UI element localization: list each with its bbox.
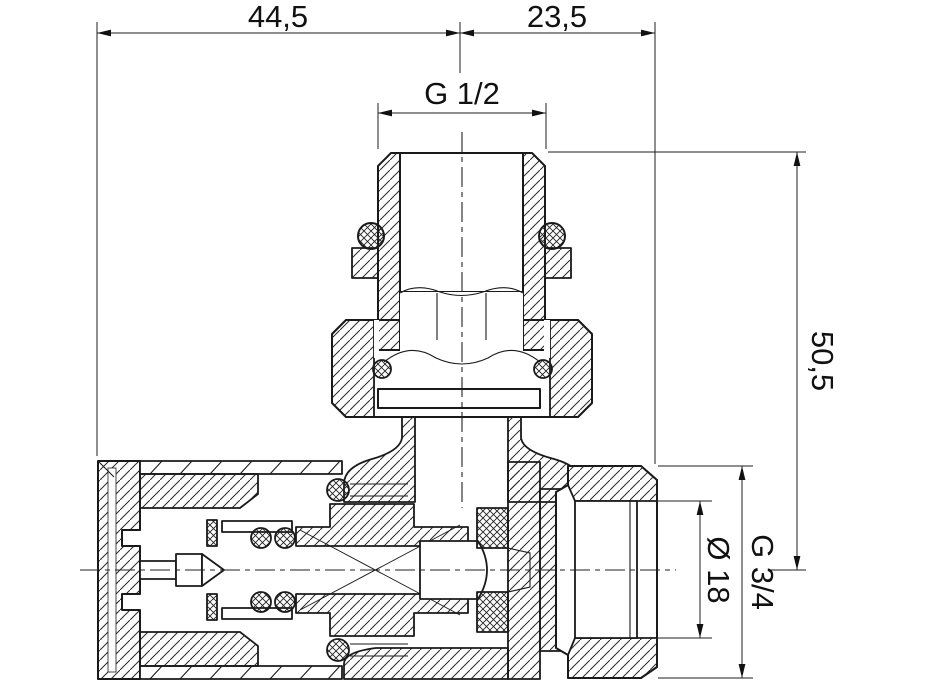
dimension-label-outlet-bore: Ø 18 bbox=[701, 536, 736, 603]
valve-section-canvas: 44,5 23,5 G 1/2 50,5 Ø 18 G 3/4 bbox=[0, 0, 928, 686]
seal-bar-lower bbox=[207, 594, 217, 620]
arrow-top-g34 bbox=[739, 466, 746, 480]
seat-seal-upper bbox=[477, 508, 508, 548]
arrow-left-44 bbox=[97, 30, 111, 37]
seal-bar-upper bbox=[207, 520, 217, 546]
dimension-label-outlet-thread: G 3/4 bbox=[745, 534, 780, 610]
arrow-bottom-d18 bbox=[697, 624, 704, 638]
oring-mid-right bbox=[534, 360, 552, 378]
spindle-oring-1 bbox=[251, 528, 271, 548]
dimension-label-height: 50,5 bbox=[805, 331, 840, 391]
seat-seal-lower bbox=[477, 592, 508, 632]
spindle-oring-4 bbox=[275, 592, 295, 612]
arrow-right-44 bbox=[446, 30, 460, 37]
shell-top-plate bbox=[140, 461, 342, 474]
cartridge-oring-top bbox=[327, 479, 349, 501]
cartridge-lower bbox=[296, 594, 468, 636]
arrow-top-505 bbox=[794, 152, 801, 166]
oring-bracket-right bbox=[545, 248, 571, 278]
oring-mid-left bbox=[373, 360, 391, 378]
oring-top-right bbox=[539, 223, 565, 249]
lower-bracket bbox=[140, 632, 258, 666]
bottom-flare bbox=[344, 648, 508, 679]
oring-bracket-left bbox=[352, 248, 378, 278]
cartridge-upper bbox=[296, 504, 468, 546]
arrow-bottom-505 bbox=[794, 556, 801, 570]
dimension-label-top-width-left: 44,5 bbox=[248, 0, 308, 34]
arrow-left-g12 bbox=[378, 110, 392, 117]
upper-bracket bbox=[140, 474, 258, 508]
dimension-label-top-width-right: 23,5 bbox=[527, 0, 587, 34]
shell-bottom-plate bbox=[140, 666, 342, 679]
arrow-left-23 bbox=[460, 30, 474, 37]
arrow-right-g12 bbox=[532, 110, 546, 117]
arrow-right-23 bbox=[641, 30, 655, 37]
dimension-label-top-thread: G 1/2 bbox=[424, 76, 500, 111]
arrow-top-d18 bbox=[697, 501, 704, 515]
valve-technical-drawing: 44,5 23,5 G 1/2 50,5 Ø 18 G 3/4 bbox=[0, 0, 928, 686]
outlet-union-nut bbox=[556, 466, 657, 678]
washer bbox=[378, 389, 540, 408]
spindle-oring-3 bbox=[251, 592, 271, 612]
arrow-bottom-g34 bbox=[739, 664, 746, 678]
oring-top-left bbox=[358, 223, 384, 249]
spindle-oring-2 bbox=[275, 528, 295, 548]
